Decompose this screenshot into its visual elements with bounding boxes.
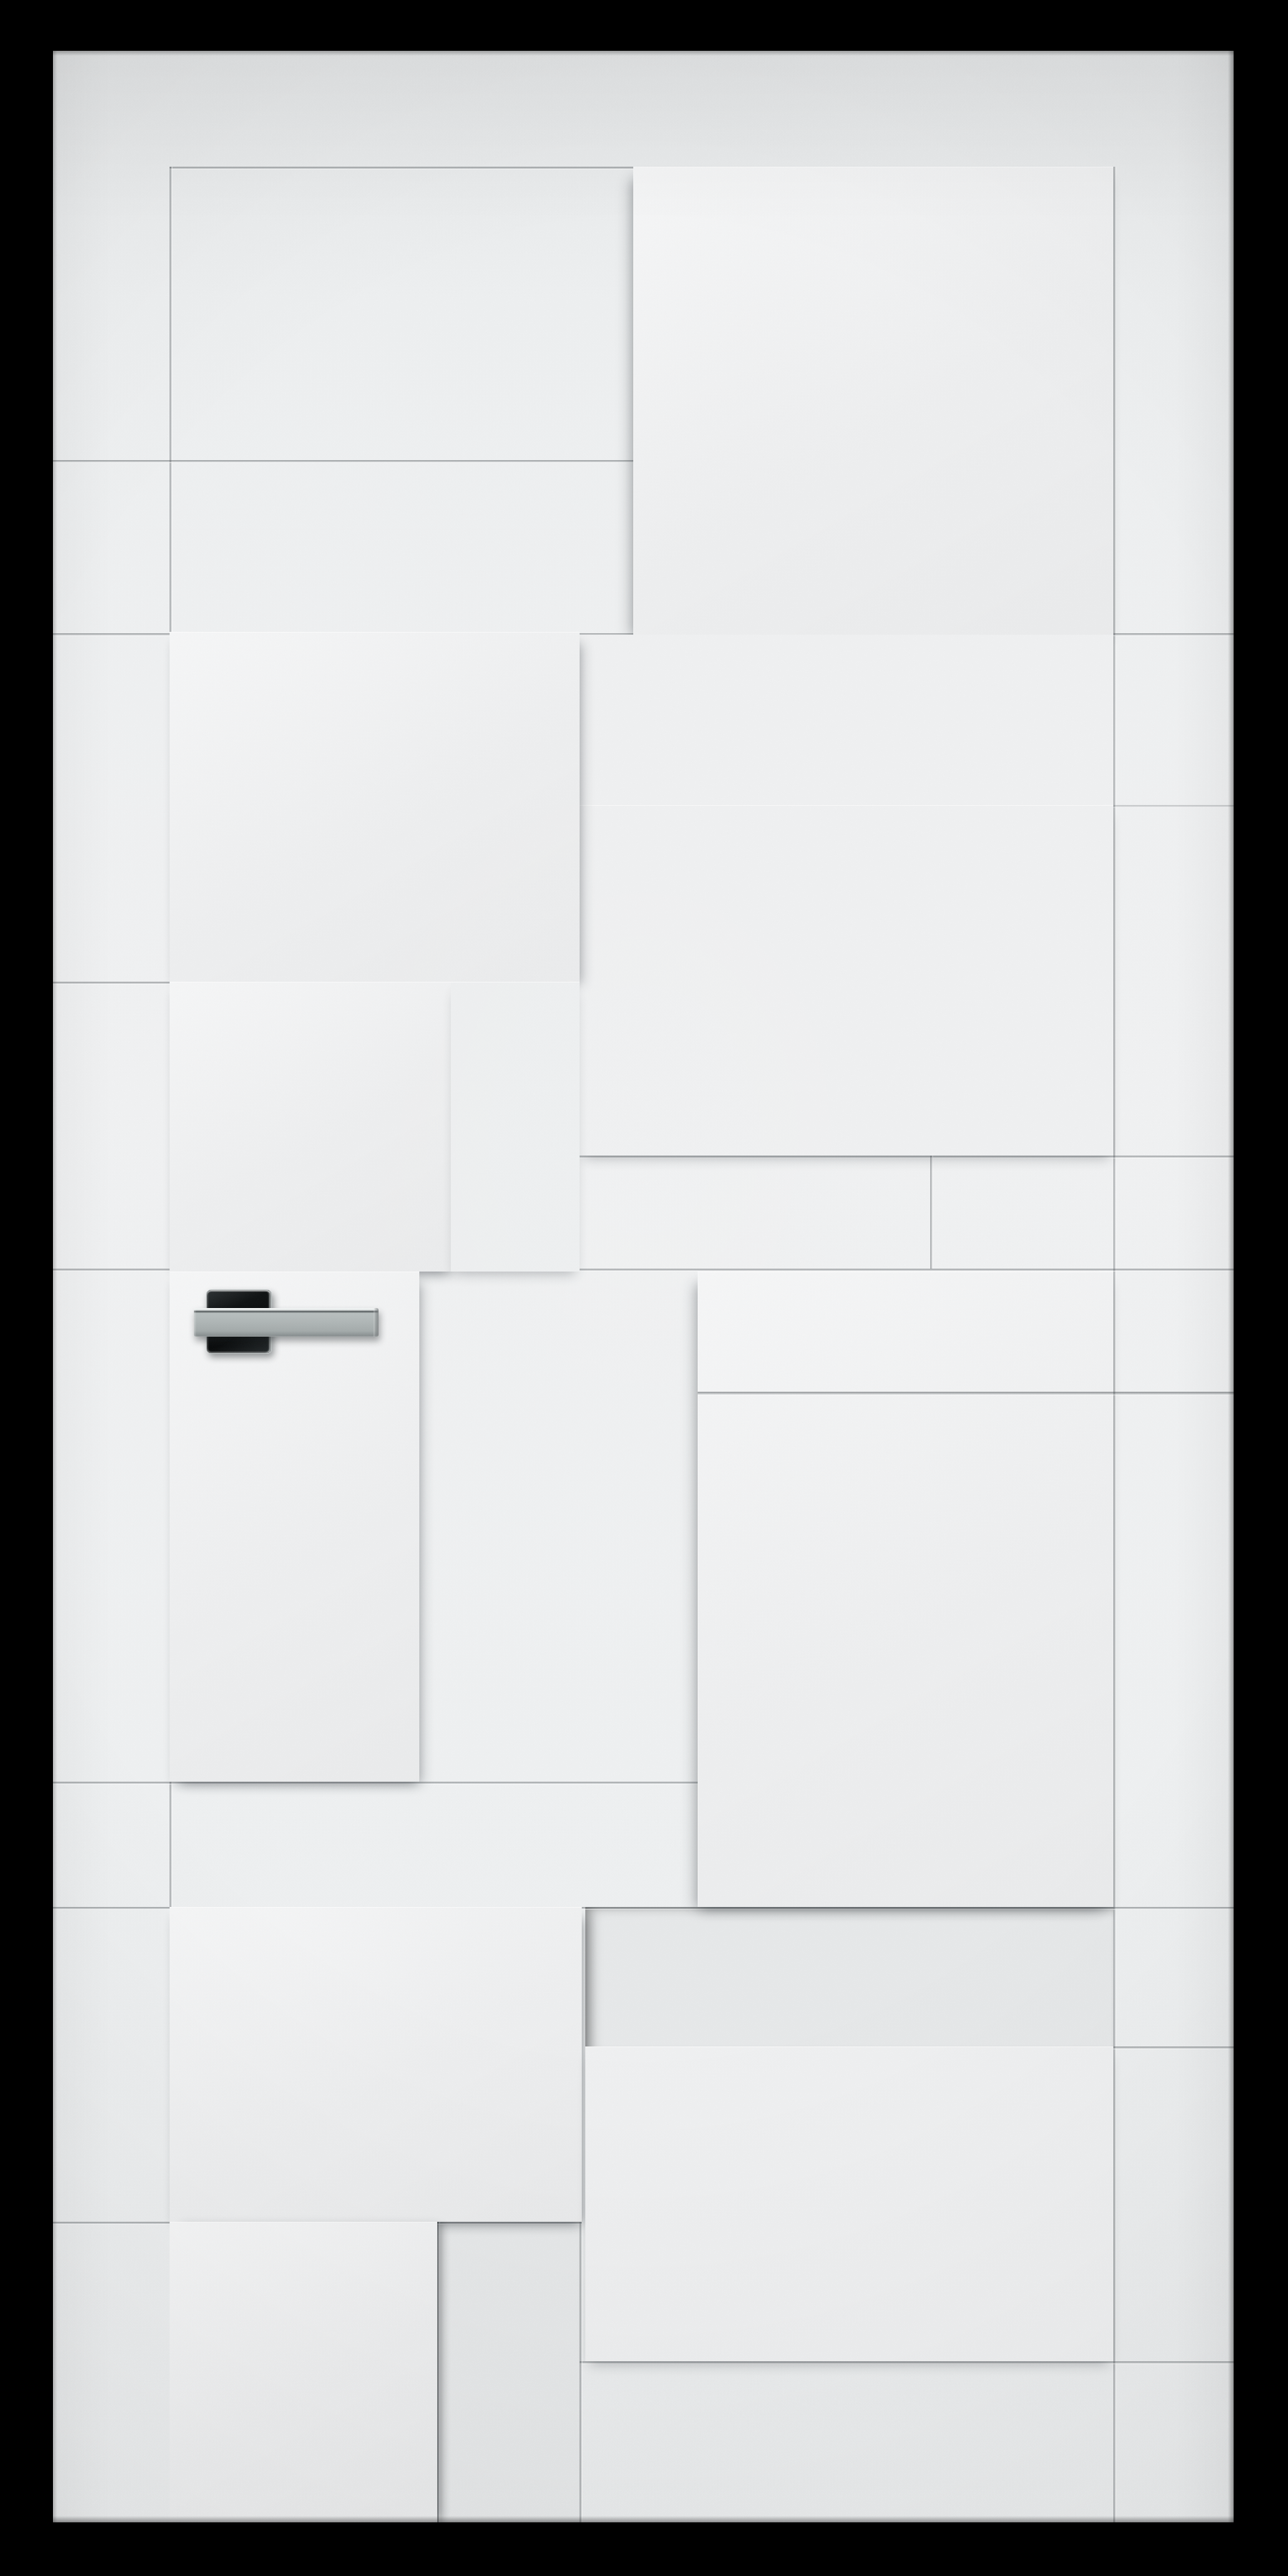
groove-row-below-handle (53, 1782, 698, 1784)
groove-bottom-divider-right (580, 2222, 582, 2522)
panel-mid-right-lower (580, 805, 1113, 1156)
door-edge-right-shade (1228, 51, 1234, 2522)
panel-top-right-raised (633, 167, 1113, 635)
groove-right-stile (1113, 167, 1116, 2522)
panel-recessed-below-large-right (585, 1907, 1113, 2046)
door-edge-left-shade (53, 51, 57, 2522)
panel-mid-right-upper (580, 635, 1113, 805)
groove-row-stile-mid (53, 982, 170, 984)
door-edge-top-shade (53, 51, 1234, 56)
panel-above-handle (170, 982, 451, 1272)
panel-bottom-left-raised (170, 1907, 582, 2222)
groove-large-panel-inset (698, 1392, 1234, 1395)
door-handle-lever (194, 1308, 379, 1337)
door (53, 51, 1234, 2522)
groove-row-upper (53, 460, 633, 462)
groove-small-tile-divider (930, 1156, 932, 1269)
panel-large-right-raised (698, 1272, 1113, 1907)
groove-bottom-divider-left (437, 2222, 439, 2522)
black-backdrop (0, 0, 1288, 2576)
panel-mid-left-raised (170, 632, 580, 982)
panel-bottom-right-raised (585, 2046, 1113, 2361)
panel-bottom-left-lower (170, 2222, 437, 2522)
groove-row-small-tiles-top (580, 1156, 1234, 1158)
panel-recessed-bottom-center (437, 2222, 580, 2522)
lever-end-cap (374, 1308, 379, 1337)
groove-row-bottom-right (580, 2361, 1234, 2363)
door-edge-bottom-shade (53, 2516, 1234, 2522)
panel-strip-above-base (451, 982, 580, 1272)
